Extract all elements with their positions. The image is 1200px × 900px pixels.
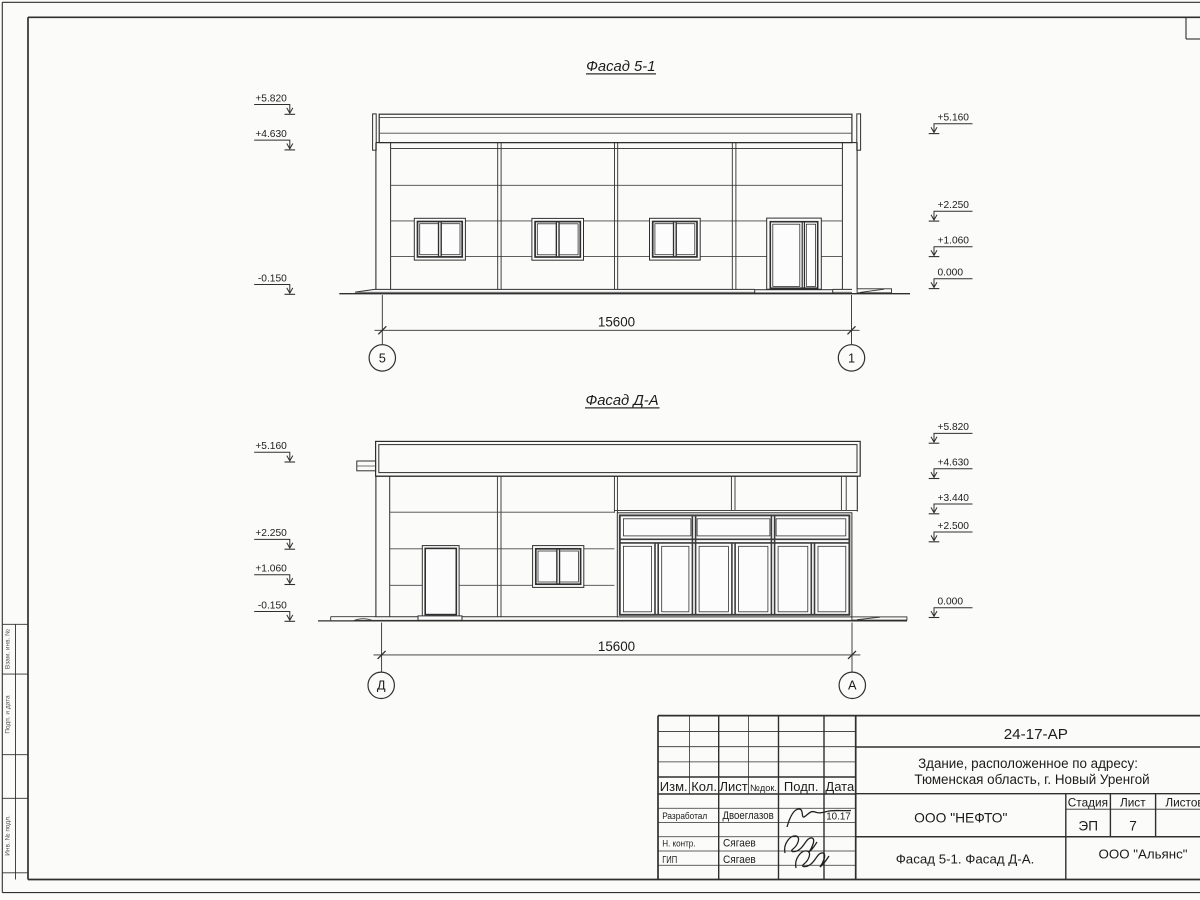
svg-text:Сягаев: Сягаев bbox=[723, 838, 756, 850]
svg-text:+4.630: +4.630 bbox=[255, 129, 287, 140]
svg-text:Тюменская область, г. Новый Ур: Тюменская область, г. Новый Уренгой bbox=[914, 772, 1149, 787]
svg-text:Д: Д bbox=[377, 678, 386, 693]
svg-text:Подп. и дата: Подп. и дата bbox=[5, 695, 12, 734]
svg-text:Инв. № подл.: Инв. № подл. bbox=[5, 815, 12, 856]
svg-text:ООО "НЕФТО": ООО "НЕФТО" bbox=[914, 811, 1007, 826]
svg-text:ООО "Альянс": ООО "Альянс" bbox=[1099, 847, 1188, 862]
svg-text:+5.820: +5.820 bbox=[938, 422, 970, 433]
svg-text:Дата: Дата bbox=[825, 779, 855, 794]
svg-text:15600: 15600 bbox=[598, 639, 635, 654]
svg-text:5: 5 bbox=[379, 350, 386, 365]
svg-text:Лист: Лист bbox=[1120, 796, 1146, 810]
svg-text:А: А bbox=[848, 678, 857, 693]
svg-text:Двоеглазов: Двоеглазов bbox=[723, 810, 774, 822]
svg-text:Н. контр.: Н. контр. bbox=[662, 839, 695, 850]
svg-text:+4.630: +4.630 bbox=[938, 458, 970, 469]
svg-text:24-17-АР: 24-17-АР bbox=[1004, 726, 1068, 743]
svg-text:0.000: 0.000 bbox=[938, 268, 964, 279]
svg-text:Подп.: Подп. bbox=[784, 779, 819, 794]
svg-text:№док.: №док. bbox=[750, 783, 777, 793]
svg-text:-0.150: -0.150 bbox=[258, 273, 287, 284]
svg-text:0.000: 0.000 bbox=[938, 597, 964, 608]
svg-text:10.17: 10.17 bbox=[826, 811, 851, 822]
svg-text:1: 1 bbox=[848, 350, 855, 365]
svg-text:Фасад Д-А: Фасад Д-А bbox=[585, 393, 658, 409]
svg-text:+2.250: +2.250 bbox=[255, 528, 287, 539]
svg-text:Лист: Лист bbox=[719, 779, 747, 794]
svg-text:Взам. инв. №: Взам. инв. № bbox=[5, 629, 12, 669]
svg-text:7: 7 bbox=[1129, 819, 1137, 834]
svg-text:+2.500: +2.500 bbox=[938, 521, 970, 532]
svg-text:ЭП: ЭП bbox=[1078, 819, 1098, 834]
svg-text:-0.150: -0.150 bbox=[258, 600, 287, 611]
svg-text:15600: 15600 bbox=[598, 315, 635, 330]
svg-text:+1.060: +1.060 bbox=[938, 236, 970, 247]
svg-text:+5.820: +5.820 bbox=[255, 93, 287, 104]
svg-text:Разработал: Разработал bbox=[662, 811, 707, 822]
svg-text:+3.440: +3.440 bbox=[938, 493, 970, 504]
svg-text:Фасад 5-1. Фасад Д-А.: Фасад 5-1. Фасад Д-А. bbox=[896, 851, 1035, 866]
svg-text:Здание, расположенное по адрес: Здание, расположенное по адресу: bbox=[918, 756, 1138, 771]
svg-text:+2.250: +2.250 bbox=[938, 200, 970, 211]
svg-text:+5.160: +5.160 bbox=[255, 441, 287, 452]
svg-text:+5.160: +5.160 bbox=[938, 113, 970, 124]
svg-text:Фасад 5-1: Фасад 5-1 bbox=[586, 59, 655, 75]
svg-text:Изм.: Изм. bbox=[660, 779, 688, 794]
svg-text:Листов: Листов bbox=[1165, 796, 1200, 810]
svg-text:Сягаев: Сягаев bbox=[723, 854, 756, 866]
svg-text:ГИП: ГИП bbox=[662, 855, 677, 866]
svg-text:Кол.: Кол. bbox=[691, 779, 717, 794]
svg-text:+1.060: +1.060 bbox=[255, 564, 287, 575]
svg-text:Стадия: Стадия bbox=[1068, 796, 1108, 810]
